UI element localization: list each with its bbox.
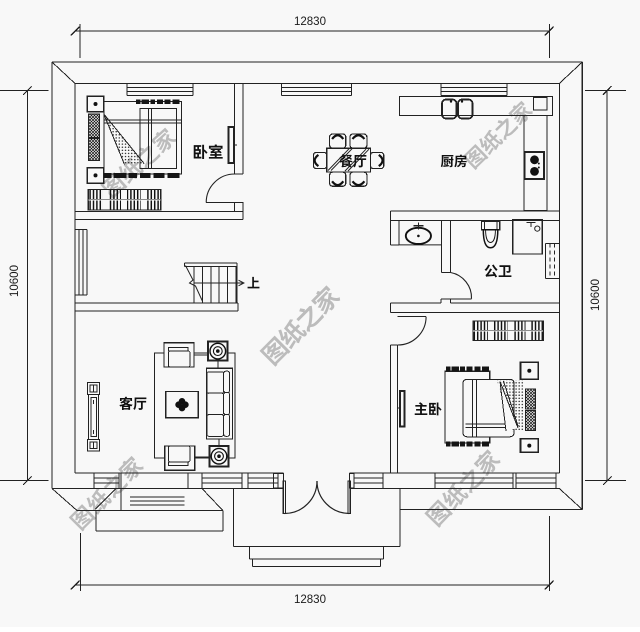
svg-text:12830: 12830 bbox=[294, 16, 326, 28]
svg-text:10600: 10600 bbox=[9, 265, 21, 297]
svg-text:12830: 12830 bbox=[294, 594, 326, 606]
svg-text:10600: 10600 bbox=[590, 279, 602, 311]
